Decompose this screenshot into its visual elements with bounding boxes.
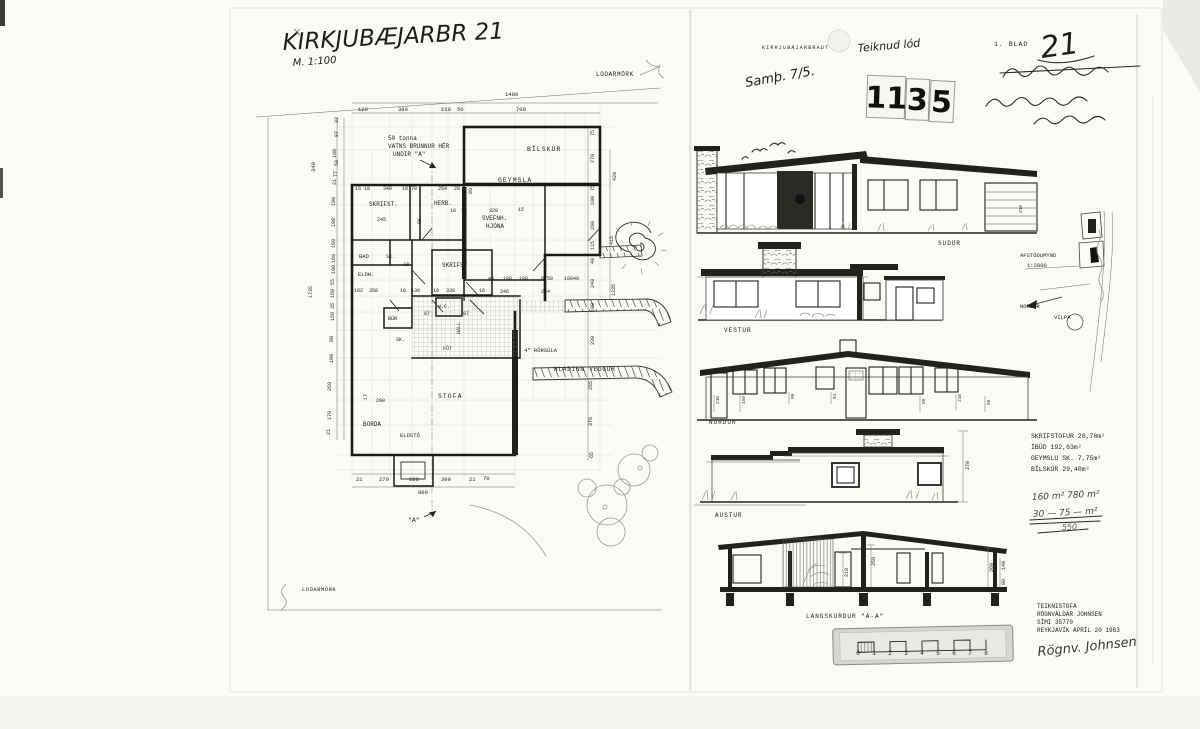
well-note-line2: VATNS BRUNNUR HÉR	[388, 143, 450, 150]
hand-calc-line3: 550	[1062, 522, 1078, 532]
room-geymsla: GEYMSLA	[498, 177, 532, 184]
dim: 150	[441, 106, 451, 113]
dim: 70	[483, 475, 490, 482]
dim: 100	[590, 303, 596, 312]
dim: 340	[310, 162, 317, 172]
lot-boundary-label-bottom: LODARMÖRK	[302, 586, 336, 593]
titleblock-line2: RÖGNVALDAR JOHNSEN	[1037, 611, 1102, 618]
dim: 100	[519, 276, 528, 282]
dim: 115	[590, 241, 596, 250]
label-vestur: VESTUR	[724, 327, 752, 334]
scalebar-tick: 7	[968, 650, 972, 657]
dim: 87	[334, 131, 340, 137]
dim: 90	[1001, 579, 1007, 585]
room-herb: HERB.	[434, 200, 452, 207]
scalebar-tick: 4	[920, 650, 924, 657]
dim: 40	[590, 258, 596, 264]
dim: 255	[588, 381, 594, 390]
room-skrifst-2: SKRIFST	[442, 262, 468, 269]
dim: 130	[411, 288, 420, 294]
dim: 100	[590, 196, 596, 205]
dim: 120	[358, 106, 368, 113]
dim: 87	[463, 311, 469, 317]
dim: 198	[331, 218, 337, 227]
room-fot: FÓT	[443, 345, 452, 352]
dim: 21	[356, 476, 363, 483]
dim: 150	[330, 289, 336, 298]
hole-punch-mark	[828, 30, 850, 52]
stamp-digit: 3	[906, 83, 928, 119]
room-borda: BORDA	[363, 421, 381, 428]
stamp-digit: 11	[865, 80, 908, 116]
dim: 250	[327, 382, 333, 391]
dim: 1735	[308, 286, 314, 298]
scalebar-tick: 3	[904, 650, 908, 657]
dim: 270	[379, 476, 389, 483]
dim: 230	[590, 336, 596, 345]
area-line-4: BÍLSKÚR 29,40m²	[1031, 464, 1090, 473]
scalebar-tick: 6	[952, 650, 956, 657]
dim: 210	[957, 394, 963, 402]
room-skrifst-1: SKRIFST.	[369, 201, 398, 208]
dim: 188	[409, 476, 419, 483]
dim: 150	[330, 312, 336, 321]
site-scale: 1:2000	[1027, 262, 1047, 269]
dim: 200	[590, 221, 596, 230]
scanned-architectural-drawing: KIRKJUBÆJARBR 21M. 1:100LODARMÖRKLODARMÖ…	[0, 0, 1200, 729]
dim: 75	[590, 185, 596, 191]
dim: 50	[334, 160, 340, 166]
label-austur: AUSTUR	[715, 512, 743, 519]
dim: 16	[479, 288, 485, 294]
dim: 8750	[541, 276, 553, 282]
dim: 65	[589, 452, 595, 458]
scalebar-tick: 2	[888, 650, 892, 657]
titleblock-line4: REYKJAVÍK APRÍL 20 1963	[1037, 627, 1120, 634]
dim: 21	[332, 179, 338, 185]
dim: 80	[468, 188, 474, 194]
dim: 10040	[564, 276, 579, 282]
dim: 370	[965, 461, 971, 470]
dim: 190	[331, 197, 337, 206]
dim: 10	[450, 208, 456, 214]
scalebar-tick: 8	[984, 650, 988, 657]
dim: 55	[330, 279, 336, 285]
closet-label: SK.	[386, 254, 395, 260]
dim: 700	[516, 106, 526, 113]
dim: 150	[741, 396, 747, 404]
dim: 1235	[611, 284, 617, 296]
dim: 800	[418, 489, 428, 496]
dim: 10	[402, 186, 408, 192]
dim: 160	[331, 254, 337, 263]
titleblock-line1: TEIKNISTOFA	[1037, 603, 1077, 610]
note-hladinn-veggur: HLADINN VEGGUR	[554, 366, 616, 373]
room-wc: W.C.	[438, 304, 450, 310]
dim: 50	[457, 106, 464, 113]
street-stamp: KIRKJUBÆJARBRAUT	[762, 45, 829, 51]
dim: 46	[488, 276, 494, 282]
room-svefnh-1: SVEFNH.	[482, 215, 507, 222]
dim: 250	[871, 557, 877, 566]
room-bilskur: BÍLSKÚR	[527, 144, 561, 153]
dim: 100	[331, 265, 337, 274]
room-eldsto: ELDSTÓ	[400, 432, 421, 439]
room-bur: BÚR	[388, 315, 397, 322]
dim: 210	[715, 396, 721, 404]
dim: 10	[400, 288, 406, 294]
dim: 240	[590, 279, 596, 288]
section-marker-a: "A"	[408, 517, 420, 524]
room-hall: HALL	[456, 322, 462, 334]
dim: 290	[376, 398, 385, 404]
dim: 210	[844, 568, 850, 577]
dim: 300	[441, 476, 451, 483]
closet-label: SK.	[396, 337, 405, 343]
dim: 340	[383, 186, 392, 192]
stamp-digit: 5	[930, 84, 953, 120]
dim: 21	[326, 429, 332, 435]
dim: 245	[377, 217, 386, 223]
label-nordur: NORDUR	[709, 419, 737, 426]
scalebar-tick: 1	[872, 650, 876, 657]
dim: 90	[986, 399, 992, 405]
dim: 284	[541, 289, 550, 295]
dim: 18	[364, 186, 370, 192]
dim: 415	[609, 236, 615, 245]
dim: 1400	[505, 91, 518, 98]
well-note-line1: 50 tonna	[388, 135, 417, 142]
dim: 90	[921, 398, 927, 404]
area-line-2: ÍBÚD 192,63m²	[1031, 442, 1082, 451]
dim: 70	[461, 208, 467, 214]
site-north-label: NORDUR	[1020, 303, 1041, 310]
dim: 77	[333, 171, 339, 177]
dim: 100	[332, 149, 338, 158]
room-stofa: STOFA	[438, 393, 463, 400]
dim: 21	[469, 476, 476, 483]
site-vilpa-label: VILPA	[1054, 314, 1071, 321]
dim: 162	[354, 288, 363, 294]
dim: 190	[329, 354, 335, 363]
dim: 17	[363, 394, 369, 400]
dim: 28	[454, 186, 460, 192]
dim: 170	[327, 411, 333, 420]
dim: 87	[424, 311, 430, 317]
dim: 380	[398, 106, 408, 113]
scalebar-tick: 5	[936, 650, 940, 657]
dim: 80	[329, 336, 335, 342]
label-section: LANGSKURDUR "A-A"	[806, 613, 884, 620]
dim: 420	[612, 172, 618, 181]
dim: 70	[411, 186, 417, 192]
drawing-canvas: KIRKJUBÆJARBR 21M. 1:100LODARMÖRKLODARMÖ…	[0, 0, 1200, 729]
well-note-line3: UNDIR "A"	[393, 151, 425, 158]
dim: 15	[518, 207, 524, 213]
hand-sheet-number: 21	[1038, 26, 1081, 66]
dim: 260	[989, 563, 995, 572]
titleblock-line3: SÍMI 35770	[1037, 619, 1073, 626]
dim: 358	[369, 288, 378, 294]
dim: 90	[790, 393, 796, 399]
closet-label: SK.	[404, 262, 413, 268]
label-sudur: SUDUR	[938, 240, 961, 247]
dim: 270	[590, 154, 596, 163]
area-line-3: GEYMSLU SK. 7,75m²	[1031, 455, 1101, 462]
note-rorsula: 4" RÖRSÚLA	[524, 347, 558, 354]
dim: 140	[1001, 561, 1007, 570]
dim: 94	[832, 393, 838, 399]
site-title: AFSTÖDUMYND	[1020, 252, 1057, 259]
room-svefnh-2: HJÓNA	[486, 223, 504, 230]
dim: 330	[446, 288, 455, 294]
dim: 75	[590, 130, 596, 136]
dim: 33	[334, 117, 340, 123]
room-bad: BAD	[359, 253, 370, 260]
dim: 35	[330, 303, 336, 309]
sheet-label: 1. BLAD	[994, 41, 1028, 48]
scale-bar	[833, 625, 1014, 665]
closet-label: SK.	[417, 215, 423, 224]
dim: 370	[588, 417, 594, 426]
dim: 160	[331, 239, 337, 248]
room-eldh: ELDH.	[358, 271, 375, 278]
area-line-1: SKRIFSTOFUR 20,78m²	[1031, 433, 1105, 440]
dim: 210	[1018, 205, 1024, 213]
lot-boundary-label-top: LODARMÖRK	[596, 71, 634, 78]
dim: 10	[433, 288, 439, 294]
dim: 320	[489, 208, 498, 214]
dim: 246	[500, 289, 509, 295]
scalebar-tick: 0	[856, 650, 860, 657]
dim: 100	[503, 276, 512, 282]
dim: 16	[355, 186, 361, 192]
dim: 264	[438, 186, 447, 192]
